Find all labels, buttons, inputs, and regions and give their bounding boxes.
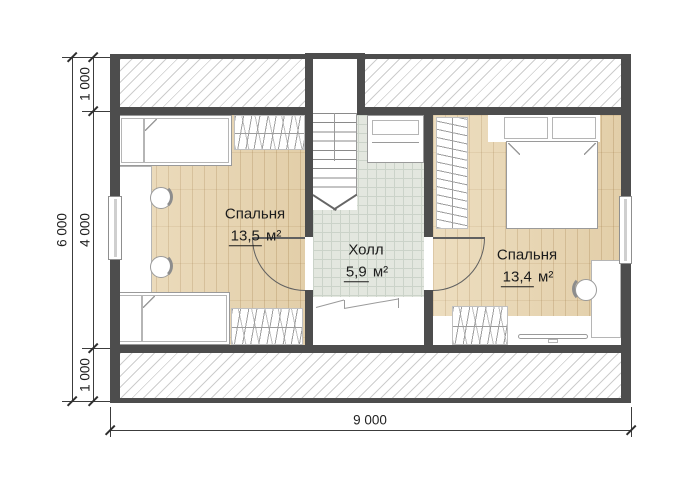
stool-backrest xyxy=(147,184,173,210)
tv-stand-foot xyxy=(548,339,558,343)
dresser-line xyxy=(372,142,419,143)
partition-left-lower xyxy=(305,290,313,345)
area-value: 5,9 xyxy=(344,263,369,282)
dim-value-vertical-total: 6 000 xyxy=(55,213,70,247)
pillow-left xyxy=(504,117,548,139)
single-bed-top xyxy=(118,115,232,166)
double-bed xyxy=(506,141,598,229)
outer-wall-top xyxy=(110,54,631,59)
single-bed-bottom xyxy=(116,292,230,345)
floor-plan-canvas: Спальня 13,5 м² Холл 5,9 м² Спальня 13,4… xyxy=(0,0,700,494)
closet-rail-line xyxy=(232,327,302,328)
blanket-fold xyxy=(143,296,155,308)
pillow xyxy=(121,118,144,163)
bedroom-right-label: Спальня 13,4 м² xyxy=(497,244,557,288)
staircase-treads xyxy=(313,113,357,196)
blanket-fold-right xyxy=(584,143,596,155)
dim-line-vertical-total xyxy=(72,57,73,401)
desk-right xyxy=(591,260,621,338)
area-value: 13,4 xyxy=(501,268,534,287)
area-unit: м² xyxy=(538,268,553,285)
dim-value-segment-bottom: 1 000 xyxy=(78,358,93,392)
closet-rail-top-left xyxy=(234,115,305,150)
stool-1 xyxy=(150,187,172,209)
area-value: 13,5 xyxy=(229,227,262,246)
dim-ext-knee-bottom xyxy=(82,348,110,349)
pillow-right xyxy=(552,117,596,139)
stair-bump-wall-right xyxy=(357,53,365,115)
stool-backrest xyxy=(147,253,173,279)
outer-wall-bottom xyxy=(110,398,631,403)
wardrobe-rail-right-room xyxy=(436,117,468,229)
dim-line-horizontal-total xyxy=(110,430,631,431)
hall-dresser xyxy=(367,115,424,163)
dim-value-segment-middle: 4 000 xyxy=(78,213,93,247)
partition-left-upper xyxy=(305,115,313,237)
wardrobe-rail-line xyxy=(452,118,453,228)
dim-value-horizontal-total: 9 000 xyxy=(353,413,387,428)
stool-2 xyxy=(150,256,172,278)
bedroom-left-label: Спальня 13,5 м² xyxy=(225,203,285,247)
area-unit: м² xyxy=(373,263,388,280)
closet-rail-line xyxy=(453,326,507,327)
partition-right-lower xyxy=(424,290,433,345)
room-area: 5,9 м² xyxy=(344,261,388,283)
room-area: 13,5 м² xyxy=(225,225,285,247)
window-pane xyxy=(114,199,117,257)
dim-ext-left xyxy=(110,407,111,437)
stair-center-line xyxy=(334,113,335,161)
room-name: Спальня xyxy=(225,203,285,225)
dim-ext-knee-top xyxy=(82,111,110,112)
room-name: Спальня xyxy=(497,244,557,266)
knee-wall-top-left xyxy=(120,107,305,115)
chair-backrest xyxy=(572,276,598,302)
dim-value-segment-top: 1 000 xyxy=(78,67,93,101)
dim-ext-right xyxy=(631,407,632,437)
room-area: 13,4 м² xyxy=(497,266,557,288)
knee-wall-top-right xyxy=(365,107,621,115)
window-right xyxy=(619,196,632,264)
closet-rail-bottom-left xyxy=(231,308,303,345)
hall-label: Холл 5,9 м² xyxy=(344,239,388,283)
blanket-fold-left xyxy=(508,143,520,155)
closet-rail-bottom-right xyxy=(452,306,508,345)
blanket-fold xyxy=(145,119,157,131)
partition-right-upper xyxy=(424,115,433,237)
stair-bump-wall-top xyxy=(305,53,365,59)
eaves-hatch-top-left xyxy=(120,59,305,107)
desk-left xyxy=(118,166,152,296)
knee-wall-bottom xyxy=(120,345,621,353)
pillow xyxy=(119,295,142,342)
window-pane xyxy=(624,199,627,261)
eaves-hatch-top-right xyxy=(365,59,621,107)
eaves-hatch-bottom xyxy=(120,353,621,398)
desk-chair xyxy=(575,279,597,301)
window-left xyxy=(108,196,122,260)
stair-bump-wall-left xyxy=(305,53,313,115)
dresser-drawer xyxy=(372,120,419,135)
closet-rail-line xyxy=(235,133,304,134)
niche-drop-2 xyxy=(398,298,399,308)
area-unit: м² xyxy=(266,227,281,244)
room-name: Холл xyxy=(344,239,388,261)
